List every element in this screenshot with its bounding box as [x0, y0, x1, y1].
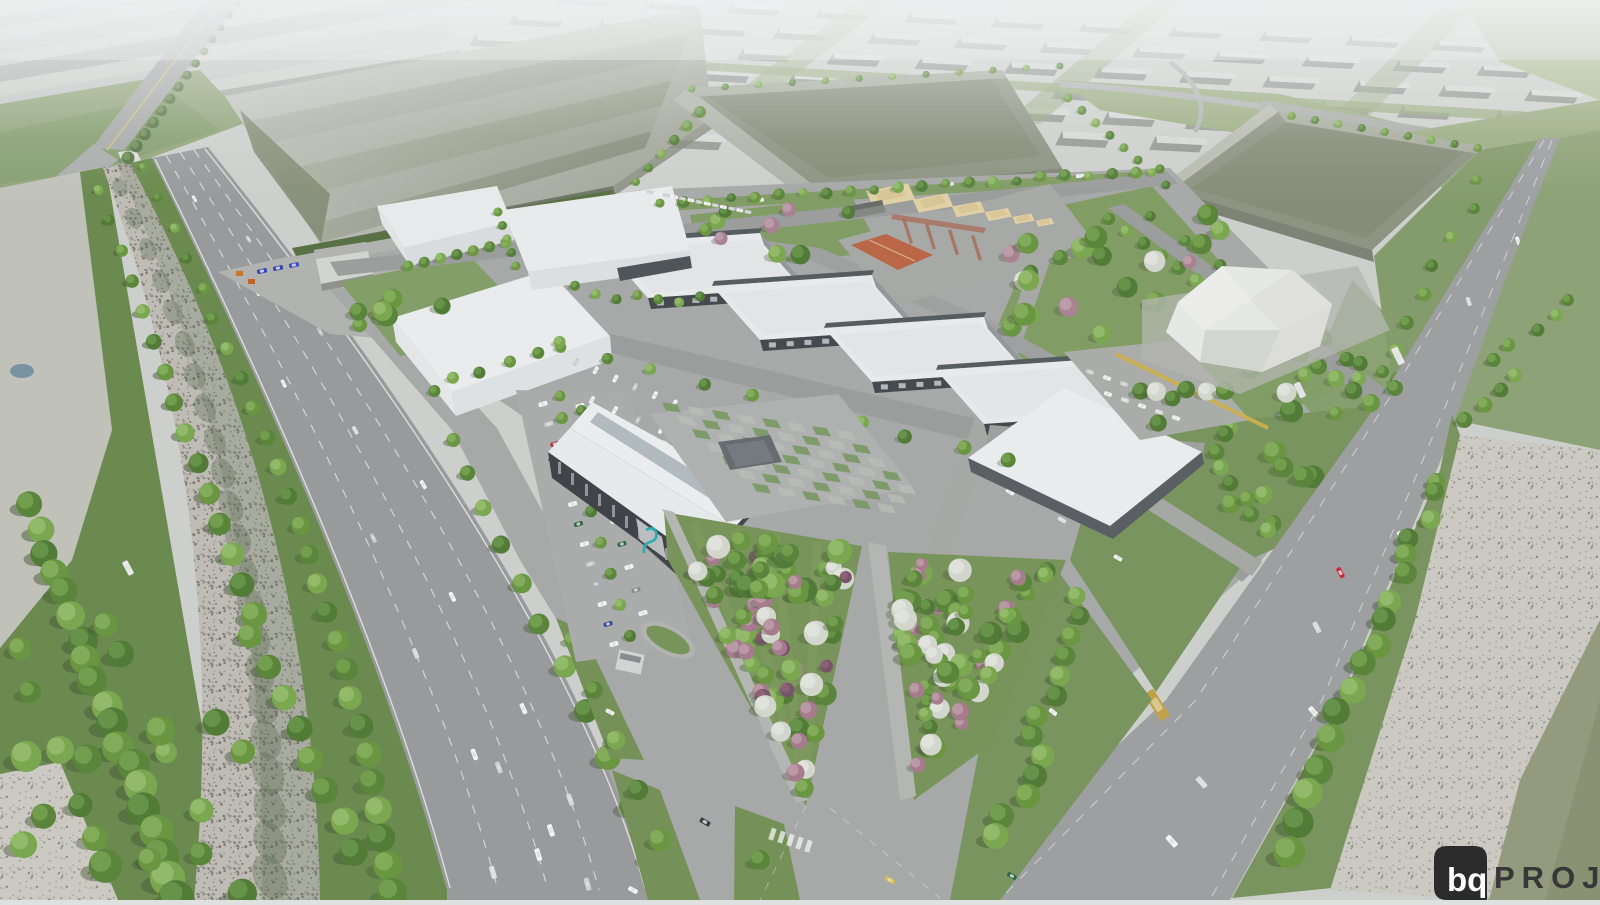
svg-text:bq: bq	[1447, 861, 1487, 898]
svg-text:PROJE: PROJE	[1494, 860, 1600, 895]
